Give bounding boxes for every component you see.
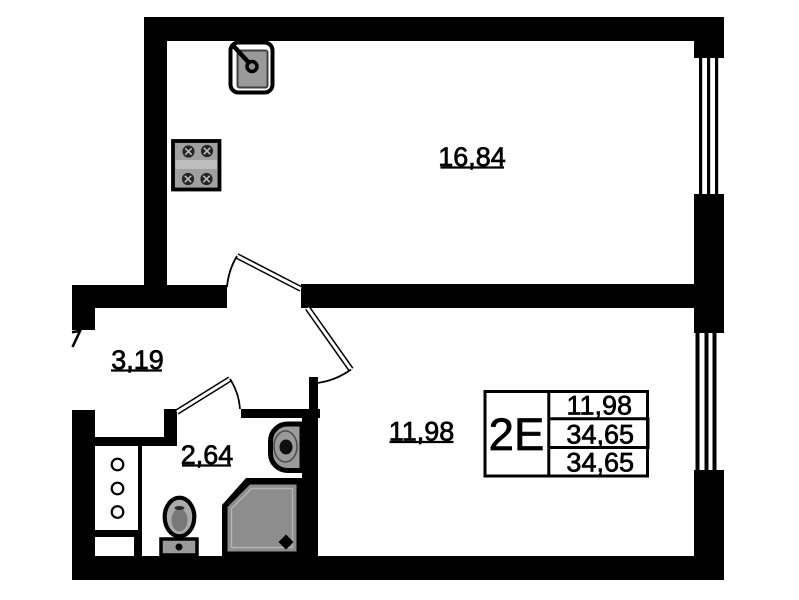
svg-text:2E: 2E (489, 409, 545, 460)
svg-text:34,65: 34,65 (566, 420, 634, 450)
svg-text:11,98: 11,98 (566, 391, 632, 421)
svg-text:34,65: 34,65 (566, 448, 634, 478)
